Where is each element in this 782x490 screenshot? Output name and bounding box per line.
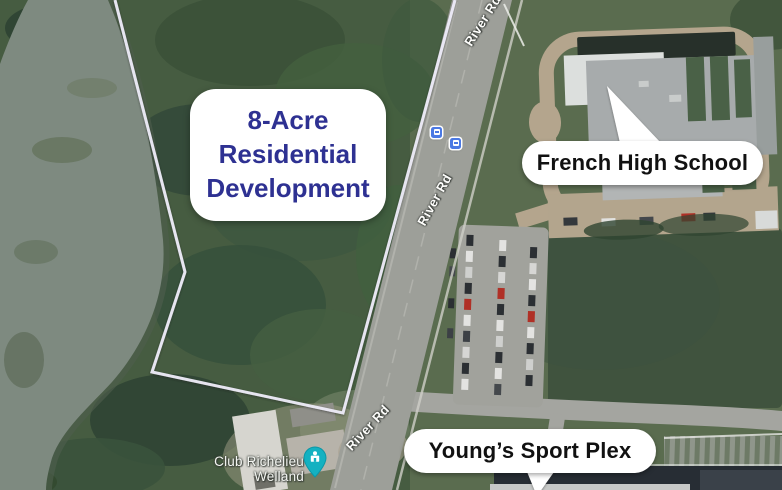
- bus-stop-icon[interactable]: [431, 127, 442, 138]
- satellite-imagery: [0, 0, 782, 490]
- parcel-label-line2: Residential: [219, 138, 358, 172]
- parcel-label: 8-Acre Residential Development: [190, 89, 386, 221]
- map-screenshot: 8-Acre Residential Development French Hi…: [0, 0, 782, 490]
- sportplex-callout-label: Young’s Sport Plex: [429, 438, 632, 464]
- parcel-label-line1: 8-Acre: [248, 104, 329, 138]
- parcel-label-line3: Development: [206, 172, 369, 206]
- callout-french-high-school: French High School: [522, 141, 763, 185]
- callout-youngs-sport-plex: Young’s Sport Plex: [404, 429, 656, 473]
- school-callout-label: French High School: [537, 150, 748, 176]
- bus-stop-icon[interactable]: [450, 138, 461, 149]
- parking-lot: [445, 224, 549, 407]
- poi-pin-icon[interactable]: [303, 446, 327, 478]
- poi-label-club-richelieu[interactable]: Club Richelieu Welland: [164, 454, 304, 472]
